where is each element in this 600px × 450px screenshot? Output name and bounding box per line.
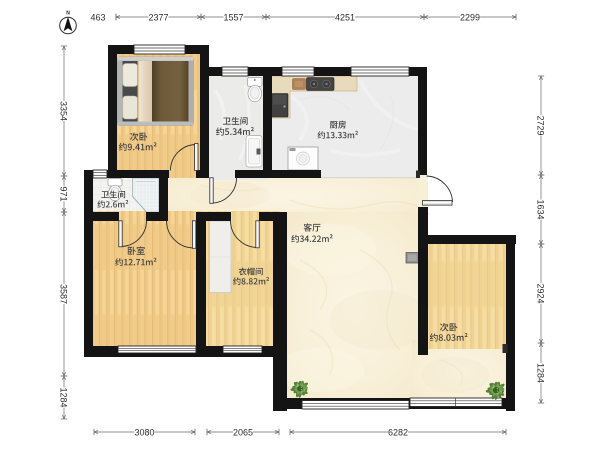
svg-text:463: 463 [90,12,105,22]
svg-text:3587: 3587 [59,284,69,304]
svg-text:N: N [66,11,70,17]
svg-text:3354: 3354 [59,101,69,121]
svg-text:971: 971 [59,186,69,201]
svg-text:2729: 2729 [536,115,546,135]
svg-text:2377: 2377 [148,12,168,22]
svg-text:1557: 1557 [223,12,243,22]
svg-text:6282: 6282 [388,427,408,437]
svg-text:1284: 1284 [536,363,546,383]
svg-text:2924: 2924 [536,283,546,303]
svg-text:1634: 1634 [536,199,546,219]
svg-text:2299: 2299 [460,12,480,22]
svg-text:4251: 4251 [335,12,355,22]
svg-text:3080: 3080 [134,427,154,437]
svg-text:2065: 2065 [233,427,253,437]
svg-text:1284: 1284 [59,387,69,407]
